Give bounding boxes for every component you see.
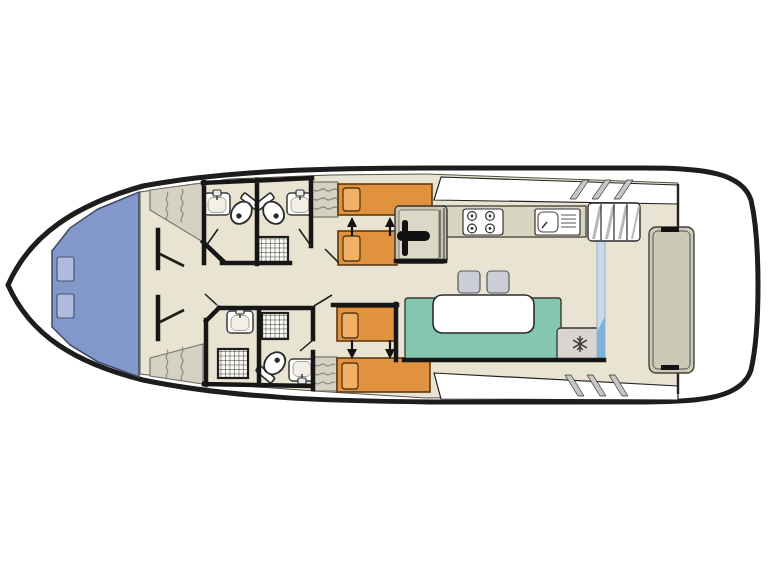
shower-icon bbox=[258, 237, 288, 263]
burner-icon bbox=[486, 224, 495, 233]
pillow bbox=[343, 236, 360, 261]
stool bbox=[458, 271, 480, 293]
shower-icon bbox=[218, 349, 248, 378]
dinette-table bbox=[433, 295, 534, 333]
pillow bbox=[342, 363, 358, 389]
galley bbox=[443, 206, 586, 237]
burner-icon bbox=[468, 224, 477, 233]
burner-icon bbox=[468, 212, 477, 221]
burner-icon bbox=[486, 212, 495, 221]
wash-basin-icon bbox=[204, 190, 230, 215]
steering-column-icon bbox=[397, 231, 430, 241]
deck-plan-svg bbox=[0, 0, 768, 576]
wash-basin-icon bbox=[227, 308, 253, 333]
stool bbox=[487, 271, 509, 293]
sink-basin-icon bbox=[538, 212, 558, 232]
pillow bbox=[342, 313, 358, 338]
helm-station bbox=[395, 206, 447, 263]
deck-plan-canvas bbox=[0, 0, 768, 576]
stern-bench bbox=[649, 227, 694, 373]
bench-hinge-icon bbox=[661, 227, 679, 232]
deck-hatch-icon bbox=[57, 257, 74, 281]
deck-hatch-icon bbox=[57, 294, 74, 318]
shower-icon bbox=[262, 313, 288, 339]
pillow bbox=[343, 188, 360, 211]
bench-hinge-icon bbox=[661, 365, 679, 370]
